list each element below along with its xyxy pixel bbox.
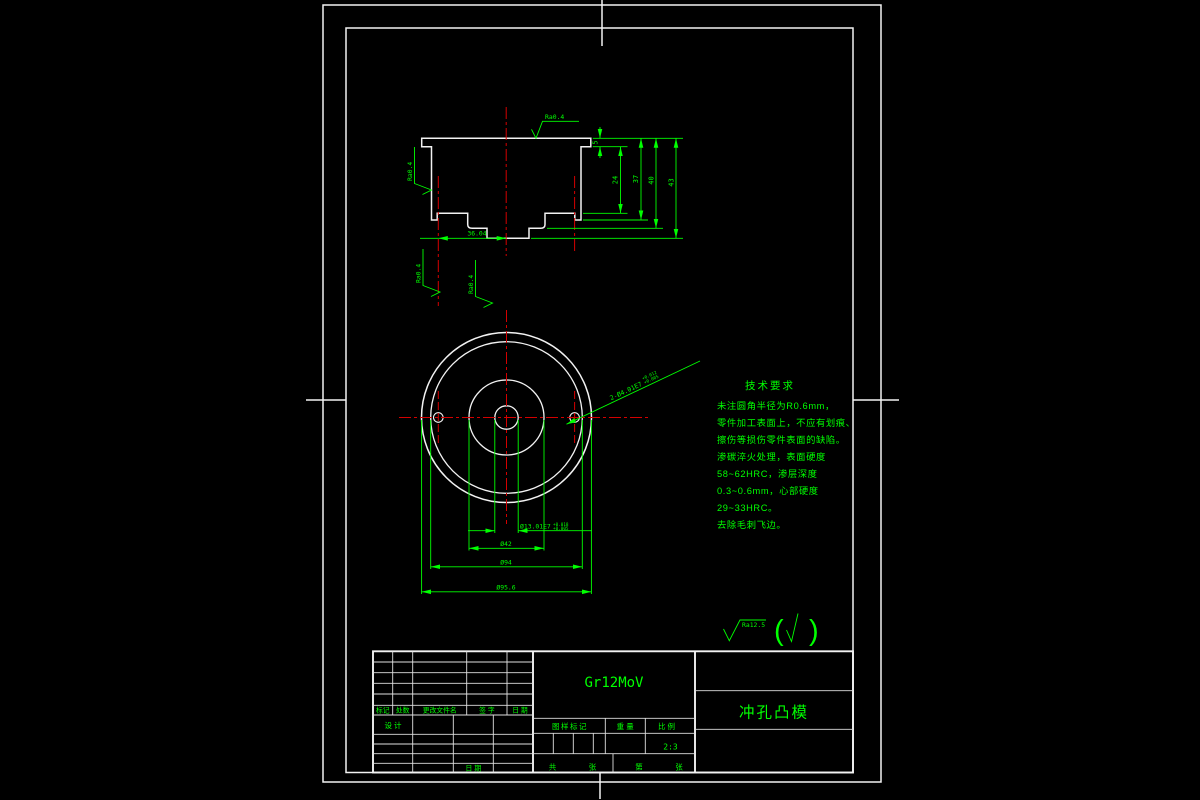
- roughness-left-label: Ra0.4: [406, 162, 414, 181]
- paren-open: (: [774, 615, 784, 647]
- extension-lines: [531, 138, 683, 238]
- dim-37-label: 37: [632, 175, 640, 183]
- tech-req-line: 29~33HRC。: [717, 503, 778, 513]
- dim-13-label: Ø13.01E7: [520, 523, 551, 531]
- roughness-icon-top: Ra0.4: [532, 113, 580, 139]
- label-weight: 重 量: [617, 722, 635, 731]
- holes-leader-line: [567, 361, 701, 424]
- tech-req-line: 擦伤等损伤零件表面的缺陷。: [717, 434, 846, 445]
- tech-req-line: 58~62HRC，渗层深度: [717, 468, 818, 479]
- label-stamp: 图样标记: [552, 721, 588, 731]
- title-block: Gr12MoV 冲孔凸模 标记 处数 更改文件名 签 字 日 期 设 计 日 期…: [373, 651, 853, 772]
- dim-36-04-label: 36.04: [467, 229, 486, 237]
- dim-24-label: 24: [612, 176, 620, 184]
- roughness-icon-left: Ra0.4: [406, 147, 432, 195]
- tech-requirements: 技术要求 未注圆角半径为R0.6mm， 零件加工表面上，不应有划痕、 擦伤等损伤…: [717, 379, 856, 530]
- dim-43-label: 43: [668, 178, 676, 186]
- dim-94-label: Ø94: [500, 558, 512, 566]
- label-mark: 标记: [376, 706, 390, 715]
- dim-5-label: 5: [592, 140, 600, 144]
- roughness-bottom-left-label: Ra0.4: [415, 264, 423, 283]
- label-signature: 签 字: [479, 706, 495, 715]
- surface-finish-note: Ra12.5 ( ): [724, 614, 819, 648]
- dim-95-6-label: Ø95.6: [496, 583, 515, 591]
- label-date-bottom: 日 期: [465, 764, 481, 772]
- roughness-general-label: Ra12.5: [742, 621, 765, 629]
- dim-40-label: 40: [648, 176, 656, 184]
- roughness-icon-bottom-right: Ra0.4: [467, 260, 493, 308]
- roughness-icon-bottom-left: Ra0.4: [415, 249, 441, 297]
- tech-req-line: 零件加工表面上，不应有划痕、: [717, 417, 856, 428]
- material-label: Gr12MoV: [584, 675, 644, 691]
- section-view: 5 24 37 40 43 36.04 Ra0.4 Ra0.4 Ra0.4 Ra…: [406, 107, 683, 308]
- tech-req-title: 技术要求: [745, 379, 795, 392]
- roughness-bottom-right-label: Ra0.4: [467, 275, 475, 294]
- label-sheet-no: 第: [635, 762, 643, 772]
- label-date: 日 期: [512, 707, 528, 715]
- label-scale: 比 例: [658, 721, 675, 731]
- tech-req-line: 未注圆角半径为R0.6mm，: [717, 400, 835, 411]
- paren-close: ): [809, 615, 819, 647]
- dim-13-tol-lower: +0.005: [553, 526, 569, 532]
- tech-req-line: 渗碳淬火处理，表面硬度: [717, 451, 826, 462]
- dim-42-label: Ø42: [500, 540, 512, 548]
- roughness-top-label: Ra0.4: [545, 113, 564, 121]
- label-sheet-unit2: 张: [675, 763, 683, 772]
- tech-req-line: 去除毛刺飞边。: [717, 519, 786, 530]
- label-change-file: 更改文件名: [423, 706, 457, 715]
- tech-req-line: 0.3~0.6mm，心部硬度: [717, 485, 819, 496]
- check-roughness-icon: [787, 614, 799, 642]
- label-sheet-unit: 张: [589, 763, 597, 772]
- scale-value: 2:3: [663, 743, 678, 752]
- circle-view: Ø13.01E7 +0.018 +0.005 Ø42 Ø94 Ø95.6 2-Ø…: [399, 310, 700, 594]
- label-design: 设 计: [384, 720, 402, 730]
- part-name-label: 冲孔凸模: [739, 704, 809, 722]
- cad-drawing-canvas: 5 24 37 40 43 36.04 Ra0.4 Ra0.4 Ra0.4 Ra…: [0, 0, 1200, 800]
- holes-callout: 2-Ø4.01E7 +0.012 +0.005: [607, 370, 660, 403]
- label-sheet-total: 共: [549, 763, 557, 772]
- label-qty: 处数: [396, 706, 410, 715]
- outer-border: [323, 5, 881, 782]
- holes-label: 2-Ø4.01E7: [609, 380, 644, 402]
